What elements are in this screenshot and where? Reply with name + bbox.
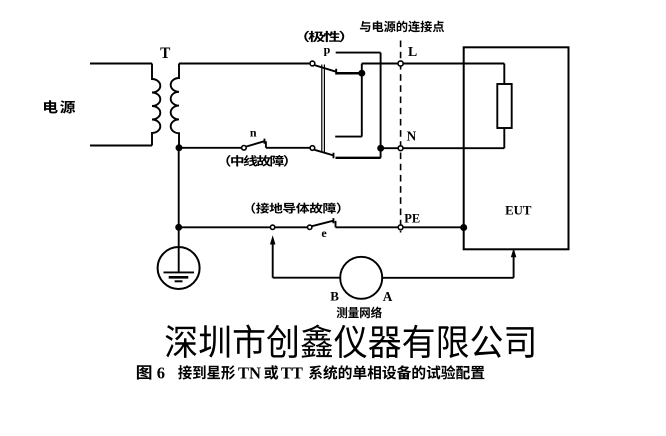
svg-text:TN: TN — [238, 363, 261, 382]
svg-text:N: N — [407, 129, 417, 144]
svg-text:T: T — [160, 45, 170, 62]
svg-text:L: L — [408, 44, 417, 59]
svg-text:PE: PE — [404, 212, 420, 226]
svg-text:n: n — [250, 125, 257, 139]
svg-text:EUT: EUT — [505, 204, 532, 218]
svg-text:B: B — [330, 289, 339, 304]
svg-text:p: p — [324, 43, 331, 57]
svg-text:6: 6 — [157, 363, 165, 382]
svg-text:e: e — [321, 226, 327, 240]
svg-text:A: A — [383, 289, 393, 304]
svg-text:TT: TT — [281, 363, 303, 382]
